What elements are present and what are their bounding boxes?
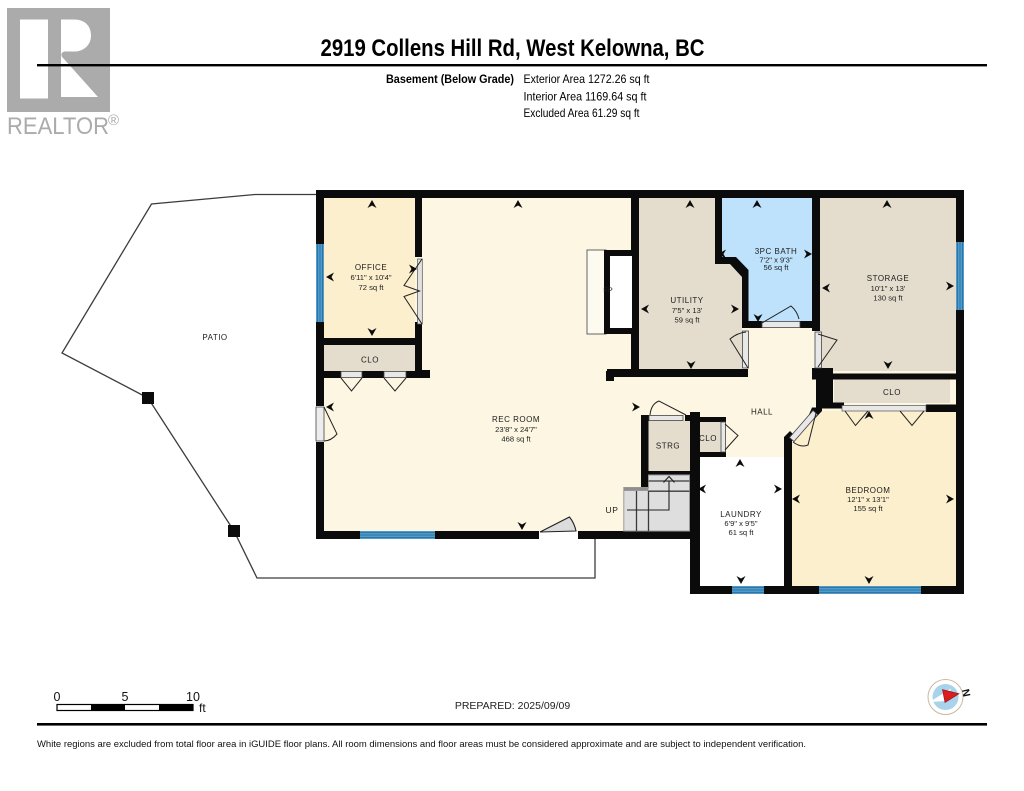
svg-text:®: ® xyxy=(108,112,119,129)
svg-text:155 sq ft: 155 sq ft xyxy=(853,504,883,513)
svg-text:UTILITY: UTILITY xyxy=(670,296,703,305)
svg-text:FP: FP xyxy=(603,286,613,295)
svg-text:72 sq ft: 72 sq ft xyxy=(359,283,385,292)
svg-text:OFFICE: OFFICE xyxy=(355,263,387,272)
svg-text:CLO: CLO xyxy=(883,388,901,397)
svg-text:ft: ft xyxy=(199,701,206,715)
svg-text:STRG: STRG xyxy=(656,442,680,451)
svg-text:REALTOR: REALTOR xyxy=(7,113,109,140)
svg-text:Exterior Area 1272.26 sq ft: Exterior Area 1272.26 sq ft xyxy=(524,72,651,86)
svg-text:12'1" x 13'1": 12'1" x 13'1" xyxy=(847,495,889,504)
svg-text:STORAGE: STORAGE xyxy=(867,274,909,283)
svg-text:CLO: CLO xyxy=(361,356,379,365)
svg-text:59 sq ft: 59 sq ft xyxy=(675,316,701,325)
svg-text:UP: UP xyxy=(605,505,618,515)
svg-text:2919 Collens Hill Rd, West Kel: 2919 Collens Hill Rd, West Kelowna, BC xyxy=(321,35,705,62)
svg-text:CLO: CLO xyxy=(699,434,717,443)
svg-text:White regions are excluded fro: White regions are excluded from total fl… xyxy=(37,739,806,749)
svg-text:61 sq ft: 61 sq ft xyxy=(729,528,755,537)
svg-text:56 sq ft: 56 sq ft xyxy=(764,263,790,272)
svg-text:10: 10 xyxy=(186,690,200,704)
svg-text:6'9" x 9'5": 6'9" x 9'5" xyxy=(724,519,758,528)
svg-text:23'8" x 24'7": 23'8" x 24'7" xyxy=(495,425,537,434)
svg-text:Excluded Area 61.29 sq ft: Excluded Area 61.29 sq ft xyxy=(524,106,641,120)
svg-text:10'1" x 13': 10'1" x 13' xyxy=(871,284,906,293)
svg-text:0: 0 xyxy=(54,690,61,704)
svg-text:468 sq ft: 468 sq ft xyxy=(501,435,531,444)
svg-text:BEDROOM: BEDROOM xyxy=(846,486,891,495)
svg-text:HALL: HALL xyxy=(751,408,773,417)
svg-text:Interior Area 1169.64 sq ft: Interior Area 1169.64 sq ft xyxy=(524,90,648,104)
svg-text:LAUNDRY: LAUNDRY xyxy=(720,510,762,519)
svg-text:PREPARED: 2025/09/09: PREPARED: 2025/09/09 xyxy=(455,700,571,712)
svg-text:130 sq ft: 130 sq ft xyxy=(873,294,903,303)
svg-text:7'5" x 13': 7'5" x 13' xyxy=(672,306,703,315)
svg-text:6'11" x 10'4": 6'11" x 10'4" xyxy=(350,273,391,282)
svg-text:REC ROOM: REC ROOM xyxy=(492,415,540,424)
svg-text:Basement (Below Grade): Basement (Below Grade) xyxy=(386,72,514,86)
svg-text:PATIO: PATIO xyxy=(202,333,227,342)
svg-text:5: 5 xyxy=(122,690,129,704)
